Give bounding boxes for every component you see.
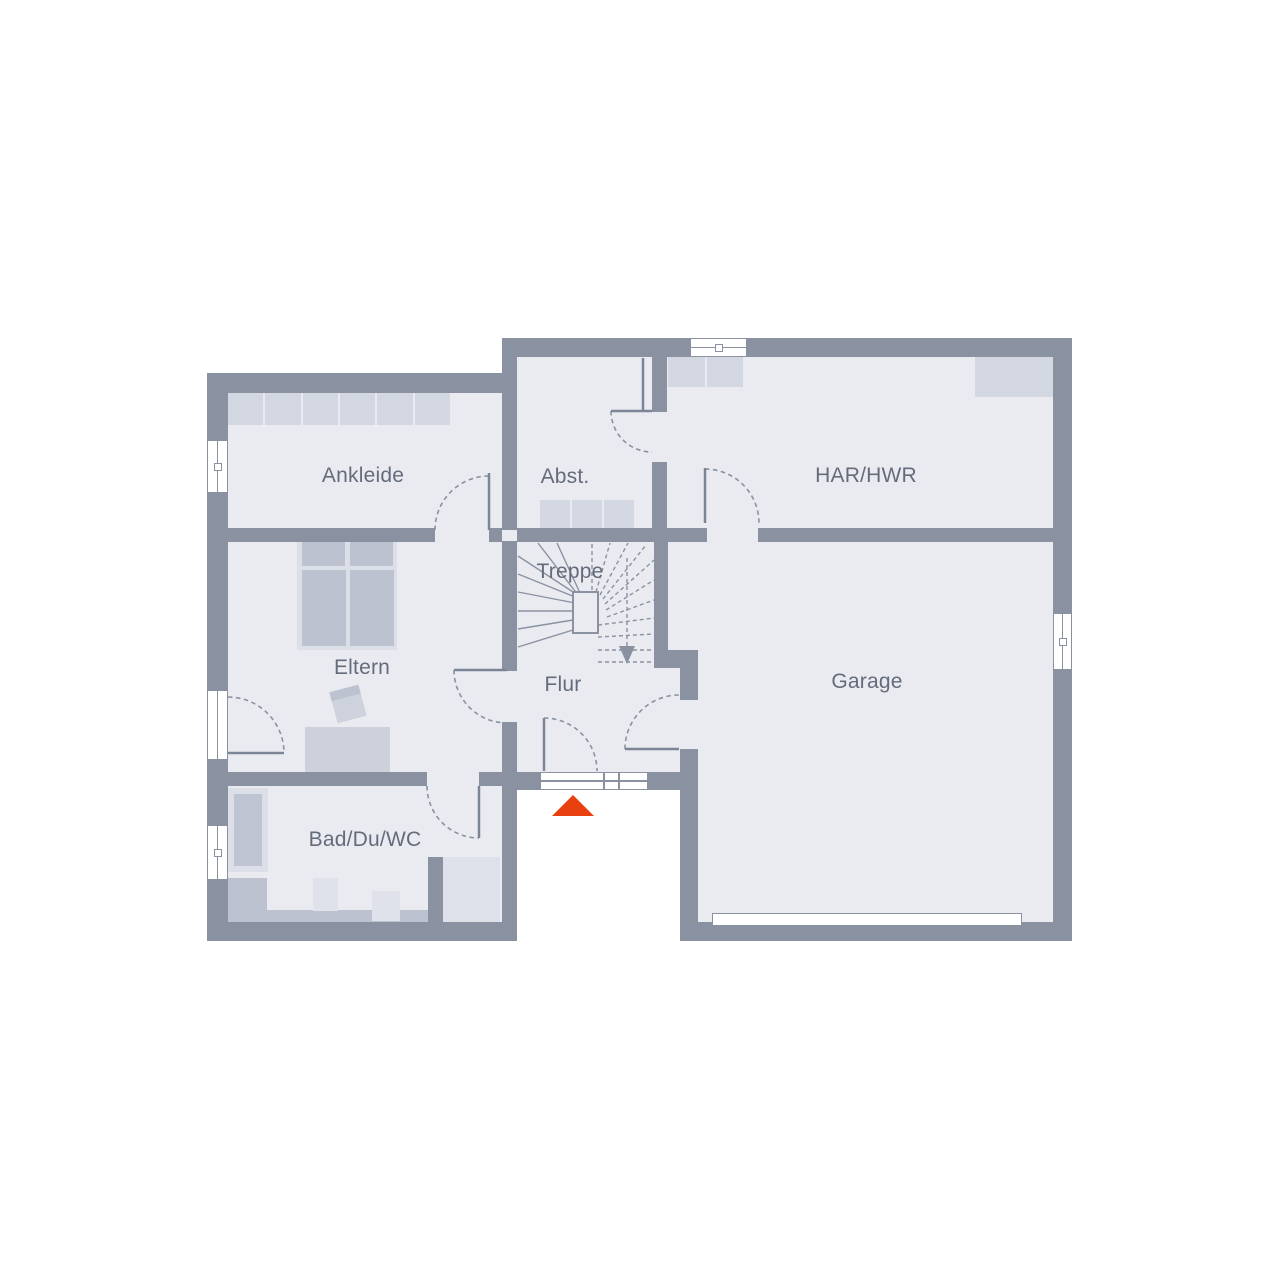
wall-segment [228, 528, 435, 542]
washer-dryer [668, 355, 743, 387]
wall-segment [502, 722, 517, 790]
dresser [305, 727, 390, 772]
wall-segment [680, 749, 698, 922]
wall-segment [489, 528, 502, 542]
bath-cabinet [228, 878, 267, 925]
wall-segment [228, 772, 427, 786]
pillow [350, 541, 393, 566]
window-garage [1053, 613, 1072, 670]
wall-segment [517, 528, 707, 542]
wall-segment [680, 668, 698, 700]
mattress [350, 570, 394, 646]
shelf [540, 500, 634, 528]
wall-segment [502, 541, 517, 671]
room-label-har-hwr: HAR/HWR [815, 464, 917, 488]
wall-segment [479, 772, 502, 786]
window-ankleide [207, 440, 228, 493]
room-label-treppe: Treppe [537, 560, 604, 584]
wall-segment [428, 857, 443, 922]
wall-segment [758, 528, 1053, 542]
room-label-garage: Garage [831, 670, 902, 694]
front-door [540, 772, 648, 790]
wall-segment [207, 373, 517, 393]
room-label-abst: Abst. [541, 465, 590, 489]
wall-segment [502, 338, 1072, 357]
room-label-ankleide: Ankleide [322, 464, 404, 488]
sink [372, 891, 400, 921]
counter [975, 353, 1053, 397]
wall-segment [654, 650, 698, 668]
wall-segment [207, 922, 517, 941]
sink [313, 878, 338, 911]
room-label-bad-du-wc: Bad/Du/WC [309, 828, 422, 852]
mattress [302, 570, 346, 646]
wall-segment [502, 790, 517, 922]
pillow [302, 541, 345, 566]
window-door-eltern [207, 690, 228, 760]
wall-segment [652, 357, 667, 412]
wall-segment [652, 462, 667, 528]
room-label-flur: Flur [545, 673, 582, 697]
garage-door [712, 913, 1022, 926]
entrance-recess [517, 790, 680, 941]
wardrobe [228, 392, 450, 425]
side-entrance-door [690, 338, 747, 357]
wall-segment [654, 542, 668, 650]
wall-segment [648, 772, 680, 790]
room-label-eltern: Eltern [334, 656, 390, 680]
wall-segment [517, 772, 540, 790]
floor-plan: Ankleide Abst. HAR/HWR Eltern Treppe Flu… [0, 0, 1280, 1280]
shower [443, 857, 500, 922]
wall-segment [502, 357, 517, 530]
bathtub-inner [234, 794, 262, 866]
window-bad [207, 825, 228, 880]
